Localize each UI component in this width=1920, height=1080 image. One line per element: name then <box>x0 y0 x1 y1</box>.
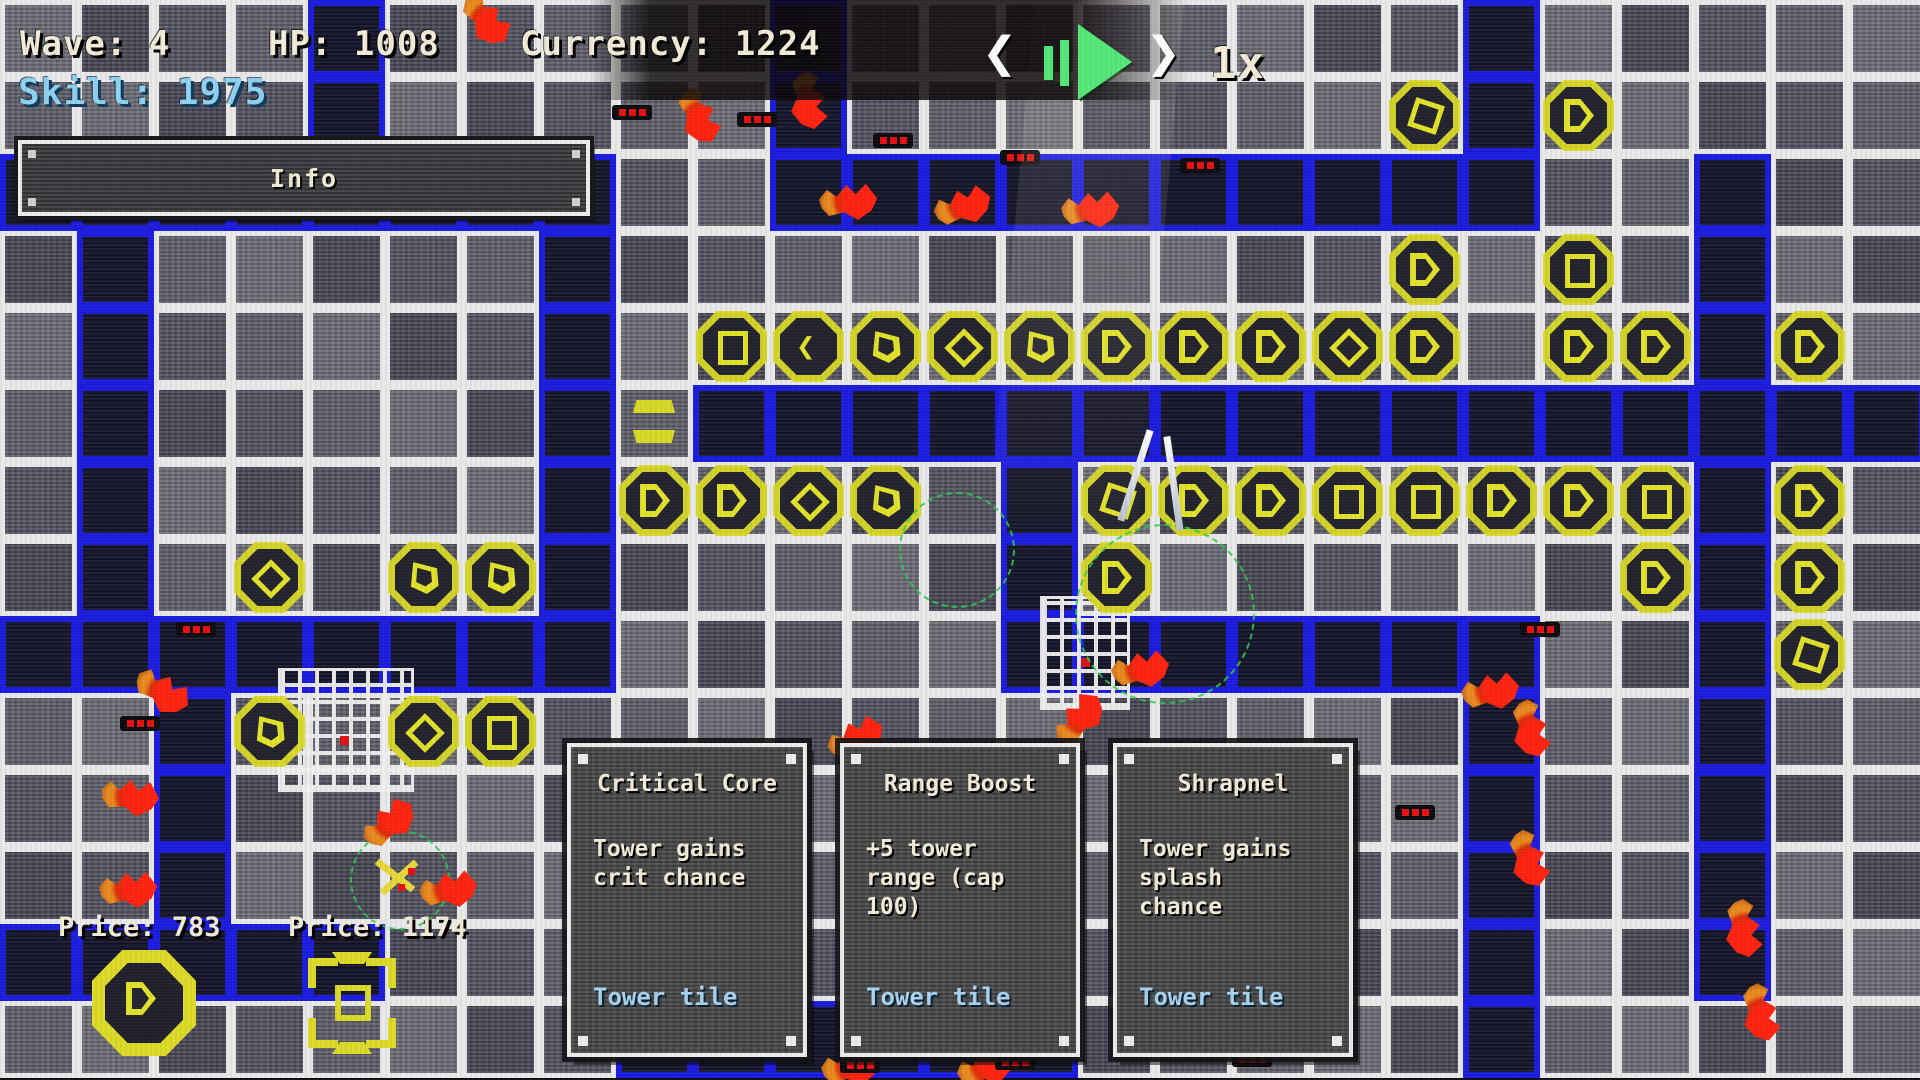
grid-tile[interactable] <box>1540 1001 1617 1078</box>
tower-play[interactable] <box>1158 311 1229 382</box>
card-corner <box>851 1036 861 1046</box>
grid-tile[interactable] <box>385 231 462 308</box>
path-tile[interactable] <box>462 616 539 693</box>
upgrade-card-shrapnel[interactable]: Shrapnel Tower gains splash chance Tower… <box>1113 743 1353 1057</box>
grid-tile[interactable] <box>0 1001 77 1078</box>
grid-tile[interactable] <box>616 231 693 308</box>
grid-tile[interactable] <box>1386 539 1463 616</box>
tower-square[interactable] <box>1543 234 1614 305</box>
grid-tile[interactable] <box>231 462 308 539</box>
grid-tile[interactable] <box>1617 0 1694 77</box>
enemy-health-bar <box>995 1055 1035 1070</box>
grid-tile[interactable] <box>693 231 770 308</box>
shop-price-label: Price: 783 <box>58 912 221 943</box>
card-corner <box>1332 1036 1342 1046</box>
path-tile[interactable] <box>1463 77 1540 154</box>
tower-diamond[interactable] <box>773 465 844 536</box>
grid-tile[interactable] <box>1386 924 1463 1001</box>
enemy-health-bar <box>840 1058 880 1073</box>
card-type-label: Tower tile <box>866 983 1011 1011</box>
tower-square[interactable] <box>696 311 767 382</box>
grid-tile[interactable] <box>1848 154 1920 231</box>
tower-spade[interactable] <box>850 311 921 382</box>
currency-counter: Currency: 1224 <box>520 24 821 64</box>
grid-tile[interactable] <box>1155 231 1232 308</box>
pause-icon[interactable] <box>1044 46 1053 80</box>
speed-indicator[interactable]: 1x <box>1210 38 1265 89</box>
pause-icon[interactable] <box>1060 40 1069 86</box>
panel-corner <box>572 198 580 206</box>
hp-counter: HP: 1008 <box>268 24 440 64</box>
grid-tile[interactable] <box>462 462 539 539</box>
path-tile[interactable] <box>770 385 847 462</box>
card-corner <box>1124 754 1134 764</box>
tower-play[interactable] <box>1543 465 1614 536</box>
path-tile[interactable] <box>1848 385 1920 462</box>
path-tile[interactable] <box>1694 231 1771 308</box>
card-description: Tower gains crit chance <box>593 835 789 893</box>
path-tile[interactable] <box>539 231 616 308</box>
path-tile[interactable] <box>154 770 231 847</box>
grid-tile[interactable] <box>1848 847 1920 924</box>
grid-tile[interactable] <box>1617 924 1694 1001</box>
grid-tile[interactable] <box>616 154 693 231</box>
path-tile[interactable] <box>847 385 924 462</box>
grid-tile[interactable] <box>616 539 693 616</box>
grid-tile[interactable] <box>462 231 539 308</box>
bracket-tower-icon[interactable] <box>302 952 402 1054</box>
tower-play[interactable] <box>696 465 767 536</box>
grid-tile[interactable] <box>1848 308 1920 385</box>
path-tile[interactable] <box>1694 308 1771 385</box>
grid-tile[interactable] <box>1617 77 1694 154</box>
path-tile[interactable] <box>1694 385 1771 462</box>
card-description: +5 tower range (cap 100) <box>866 835 1062 921</box>
grid-tile[interactable] <box>924 231 1001 308</box>
grid-tile[interactable] <box>1771 847 1848 924</box>
grid-tile[interactable] <box>1771 154 1848 231</box>
grid-tile[interactable] <box>0 693 77 770</box>
path-tile[interactable] <box>1694 154 1771 231</box>
path-tile[interactable] <box>539 462 616 539</box>
grid-tile[interactable] <box>1386 693 1463 770</box>
card-corner <box>786 1036 796 1046</box>
card-corner <box>851 754 861 764</box>
grid-tile[interactable] <box>1463 308 1540 385</box>
path-tile[interactable] <box>1463 385 1540 462</box>
tower-play[interactable] <box>1389 234 1460 305</box>
tower-play[interactable] <box>1389 311 1460 382</box>
tower-play[interactable] <box>1466 465 1537 536</box>
grid-tile[interactable] <box>231 308 308 385</box>
card-type-label: Tower tile <box>1139 983 1284 1011</box>
grid-tile[interactable] <box>1848 693 1920 770</box>
tower-play[interactable] <box>1543 311 1614 382</box>
tower-part <box>308 958 338 988</box>
tower-chevron[interactable]: ❮ <box>773 311 844 382</box>
grid-tile[interactable] <box>1540 154 1617 231</box>
grid-tile[interactable] <box>231 385 308 462</box>
tower-part <box>366 958 396 988</box>
path-tile[interactable] <box>1232 154 1309 231</box>
card-title: Critical Core <box>571 771 803 797</box>
path-tile[interactable] <box>1386 385 1463 462</box>
enemy-health-bar <box>737 112 777 127</box>
card-corner <box>1059 754 1069 764</box>
tower-play[interactable] <box>1620 542 1691 613</box>
grid-tile[interactable] <box>385 308 462 385</box>
info-button[interactable]: Info <box>18 140 590 216</box>
card-corner <box>1124 1036 1134 1046</box>
path-tile[interactable] <box>1463 0 1540 77</box>
card-corner <box>578 1036 588 1046</box>
tower-square[interactable] <box>465 696 536 767</box>
play-icon[interactable] <box>1078 24 1132 100</box>
grid-tile[interactable] <box>308 539 385 616</box>
path-tile[interactable] <box>1463 924 1540 1001</box>
grid-tile[interactable] <box>385 385 462 462</box>
grid-tile[interactable] <box>1309 77 1386 154</box>
grid-tile[interactable] <box>1771 924 1848 1001</box>
grid-tile[interactable] <box>462 1001 539 1078</box>
panel-corner <box>28 150 36 158</box>
game-screen: ❮ Wave: 4 HP: 1008 Currency: 1224 Skill:… <box>0 0 1920 1080</box>
grid-tile[interactable] <box>0 462 77 539</box>
grid-tile[interactable] <box>1463 539 1540 616</box>
grid-tile[interactable] <box>693 616 770 693</box>
panel-corner <box>572 150 580 158</box>
path-tile[interactable] <box>1694 539 1771 616</box>
tower-diamond[interactable] <box>1312 311 1383 382</box>
grid-tile[interactable] <box>770 231 847 308</box>
tower-play[interactable] <box>619 465 690 536</box>
grid-tile[interactable] <box>0 770 77 847</box>
grid-tile[interactable] <box>462 924 539 1001</box>
grid-tile[interactable] <box>1386 1001 1463 1078</box>
grid-tile[interactable] <box>0 385 77 462</box>
grid-tile[interactable] <box>0 231 77 308</box>
grid-tile[interactable] <box>154 462 231 539</box>
grid-tile[interactable] <box>693 539 770 616</box>
path-tile[interactable] <box>77 231 154 308</box>
path-tile[interactable] <box>1309 154 1386 231</box>
enemy-health-bar <box>1395 805 1435 820</box>
path-tile[interactable] <box>77 462 154 539</box>
grid-tile[interactable] <box>616 616 693 693</box>
grid-tile[interactable] <box>1309 0 1386 77</box>
path-tile[interactable] <box>77 308 154 385</box>
grid-tile[interactable] <box>1540 770 1617 847</box>
path-tile[interactable] <box>539 539 616 616</box>
grid-tile[interactable] <box>1540 693 1617 770</box>
path-tile[interactable] <box>1463 1001 1540 1078</box>
card-title: Shrapnel <box>1117 771 1349 797</box>
path-tile[interactable] <box>1309 385 1386 462</box>
enemy-health-bar <box>873 133 913 148</box>
grid-tile[interactable] <box>77 693 154 770</box>
tower-spade[interactable] <box>465 542 536 613</box>
path-tile[interactable] <box>0 616 77 693</box>
path-tile[interactable] <box>693 385 770 462</box>
path-tile[interactable] <box>77 539 154 616</box>
enemy-health-bar <box>612 105 652 120</box>
grid-tile[interactable] <box>1694 77 1771 154</box>
grid-tile[interactable] <box>1617 847 1694 924</box>
tower-play[interactable] <box>1235 465 1306 536</box>
card-corner <box>578 754 588 764</box>
skill-counter: Skill: 1975 <box>18 72 267 113</box>
grid-tile[interactable] <box>1848 616 1920 693</box>
grid-tile[interactable] <box>1386 847 1463 924</box>
grid-tile[interactable] <box>308 231 385 308</box>
grid-tile[interactable] <box>1540 0 1617 77</box>
tower-spade[interactable] <box>234 696 305 767</box>
tower-play[interactable] <box>1774 311 1845 382</box>
path-tile[interactable] <box>539 308 616 385</box>
grid-tile[interactable] <box>308 308 385 385</box>
grid-tile[interactable] <box>1617 693 1694 770</box>
grid-tile[interactable] <box>847 231 924 308</box>
tower-play[interactable] <box>1774 542 1845 613</box>
upgrade-card-range-boost[interactable]: Range Boost +5 tower range (cap 100) Tow… <box>840 743 1080 1057</box>
path-tile[interactable] <box>1694 693 1771 770</box>
tower-play[interactable] <box>1543 80 1614 151</box>
enemy-health-bar <box>120 716 160 731</box>
shop-price-label: Price: 1174 <box>288 912 467 943</box>
grid-tile[interactable] <box>1617 154 1694 231</box>
grid-tile[interactable] <box>1848 539 1920 616</box>
tower-play[interactable] <box>1774 465 1845 536</box>
upgrade-card-critical-core[interactable]: Critical Core Tower gains crit chance To… <box>567 743 807 1057</box>
grid-tile[interactable] <box>1540 539 1617 616</box>
tower-tilted[interactable] <box>1389 80 1460 151</box>
card-corner <box>786 754 796 764</box>
path-tile[interactable] <box>77 385 154 462</box>
grid-tile[interactable] <box>1771 231 1848 308</box>
path-tile[interactable] <box>1540 385 1617 462</box>
path-tile[interactable] <box>539 385 616 462</box>
tower-play[interactable] <box>1235 311 1306 382</box>
grid-tile[interactable] <box>1540 924 1617 1001</box>
path-tile[interactable] <box>1463 154 1540 231</box>
next-wave-chevron-icon[interactable]: ❯ <box>1146 18 1181 86</box>
grid-tile[interactable] <box>1771 770 1848 847</box>
octagon-play-tower-icon[interactable] <box>92 950 196 1056</box>
grid-tile[interactable] <box>1771 1001 1848 1078</box>
tower-play[interactable] <box>1620 311 1691 382</box>
grid-tile[interactable] <box>1771 77 1848 154</box>
grid-tile[interactable] <box>1309 539 1386 616</box>
grid-tile[interactable] <box>1386 0 1463 77</box>
grid-tile[interactable] <box>1617 231 1694 308</box>
grid-tile[interactable] <box>308 385 385 462</box>
path-tile[interactable] <box>1694 616 1771 693</box>
grid-tile[interactable] <box>693 154 770 231</box>
card-corner <box>1332 754 1342 764</box>
path-tile[interactable] <box>1694 770 1771 847</box>
grid-tile[interactable] <box>770 539 847 616</box>
grid-tile[interactable] <box>1617 1001 1694 1078</box>
grid-tile[interactable] <box>154 385 231 462</box>
grid-tile[interactable] <box>1232 231 1309 308</box>
grid-tile[interactable] <box>308 462 385 539</box>
enemy-health-bar <box>1520 622 1560 637</box>
grid-tile[interactable] <box>847 616 924 693</box>
grid-tile[interactable] <box>1463 231 1540 308</box>
info-button-label: Info <box>270 164 338 193</box>
grid-tile[interactable] <box>1309 231 1386 308</box>
tower-square[interactable] <box>1620 465 1691 536</box>
path-tile[interactable] <box>539 616 616 693</box>
path-tile[interactable] <box>1694 462 1771 539</box>
grid-tile[interactable] <box>1848 231 1920 308</box>
grid-tile[interactable] <box>154 308 231 385</box>
grid-tile[interactable] <box>154 539 231 616</box>
grid-tile[interactable] <box>616 308 693 385</box>
grid-tile[interactable] <box>1617 770 1694 847</box>
tower-diamond[interactable] <box>234 542 305 613</box>
grid-tile[interactable] <box>462 770 539 847</box>
grid-tile[interactable] <box>1848 0 1920 77</box>
tower-square[interactable] <box>1389 465 1460 536</box>
tower-part <box>366 1018 396 1048</box>
card-title: Range Boost <box>844 771 1076 797</box>
grid-tile[interactable] <box>1848 1001 1920 1078</box>
grid-tile[interactable] <box>1848 462 1920 539</box>
grid-tile[interactable] <box>231 231 308 308</box>
tower-diamond[interactable] <box>388 696 459 767</box>
grid-tile[interactable] <box>0 308 77 385</box>
grid-tile[interactable] <box>154 231 231 308</box>
tower-diamond[interactable] <box>927 311 998 382</box>
path-tile[interactable] <box>1386 616 1463 693</box>
grid-tile[interactable] <box>1694 0 1771 77</box>
path-tile[interactable] <box>770 154 847 231</box>
tower-link[interactable] <box>619 388 690 459</box>
path-tile[interactable] <box>1309 616 1386 693</box>
grid-tile[interactable] <box>924 616 1001 693</box>
tower-part <box>308 1018 338 1048</box>
enemy-health-bar <box>176 622 216 637</box>
grid-tile[interactable] <box>1848 77 1920 154</box>
tower-spade[interactable] <box>388 542 459 613</box>
tower-square[interactable] <box>1312 465 1383 536</box>
card-corner <box>1059 1036 1069 1046</box>
grid-tile[interactable] <box>770 616 847 693</box>
card-description: Tower gains splash chance <box>1139 835 1335 921</box>
path-tile[interactable] <box>924 154 1001 231</box>
grid-tile[interactable] <box>1771 0 1848 77</box>
grid-tile[interactable] <box>462 385 539 462</box>
tower-tilted[interactable] <box>1774 619 1845 690</box>
enemy-health-bar <box>1180 158 1220 173</box>
path-tile[interactable] <box>1617 385 1694 462</box>
prev-wave-chevron-icon[interactable]: ❮ <box>982 18 1017 86</box>
tower-core <box>335 985 371 1021</box>
card-type-label: Tower tile <box>593 983 738 1011</box>
path-tile[interactable] <box>924 385 1001 462</box>
path-tile[interactable] <box>1232 385 1309 462</box>
grid-tile[interactable] <box>1771 693 1848 770</box>
wave-counter: Wave: 4 <box>20 24 170 64</box>
grid-tile[interactable] <box>1848 924 1920 1001</box>
path-tile[interactable] <box>1386 154 1463 231</box>
grid-tile[interactable] <box>1617 616 1694 693</box>
grid-tile[interactable] <box>231 1001 308 1078</box>
grid-tile[interactable] <box>1848 770 1920 847</box>
grid-tile[interactable] <box>1540 847 1617 924</box>
grid-tile[interactable] <box>385 462 462 539</box>
grid-tile[interactable] <box>0 539 77 616</box>
crashed-unit <box>368 848 428 908</box>
grid-tile[interactable] <box>462 308 539 385</box>
panel-corner <box>28 198 36 206</box>
path-tile[interactable] <box>1771 385 1848 462</box>
